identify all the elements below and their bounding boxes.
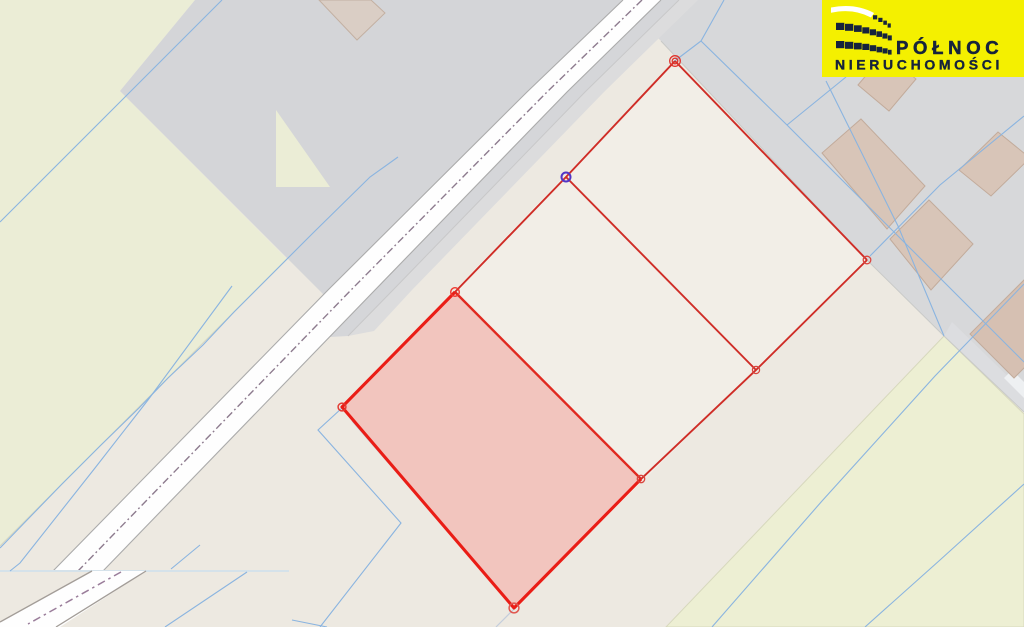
svg-text:PÓŁNOC: PÓŁNOC [896,37,1003,58]
svg-text:NIERUCHOMOŚCI: NIERUCHOMOŚCI [835,56,1003,73]
